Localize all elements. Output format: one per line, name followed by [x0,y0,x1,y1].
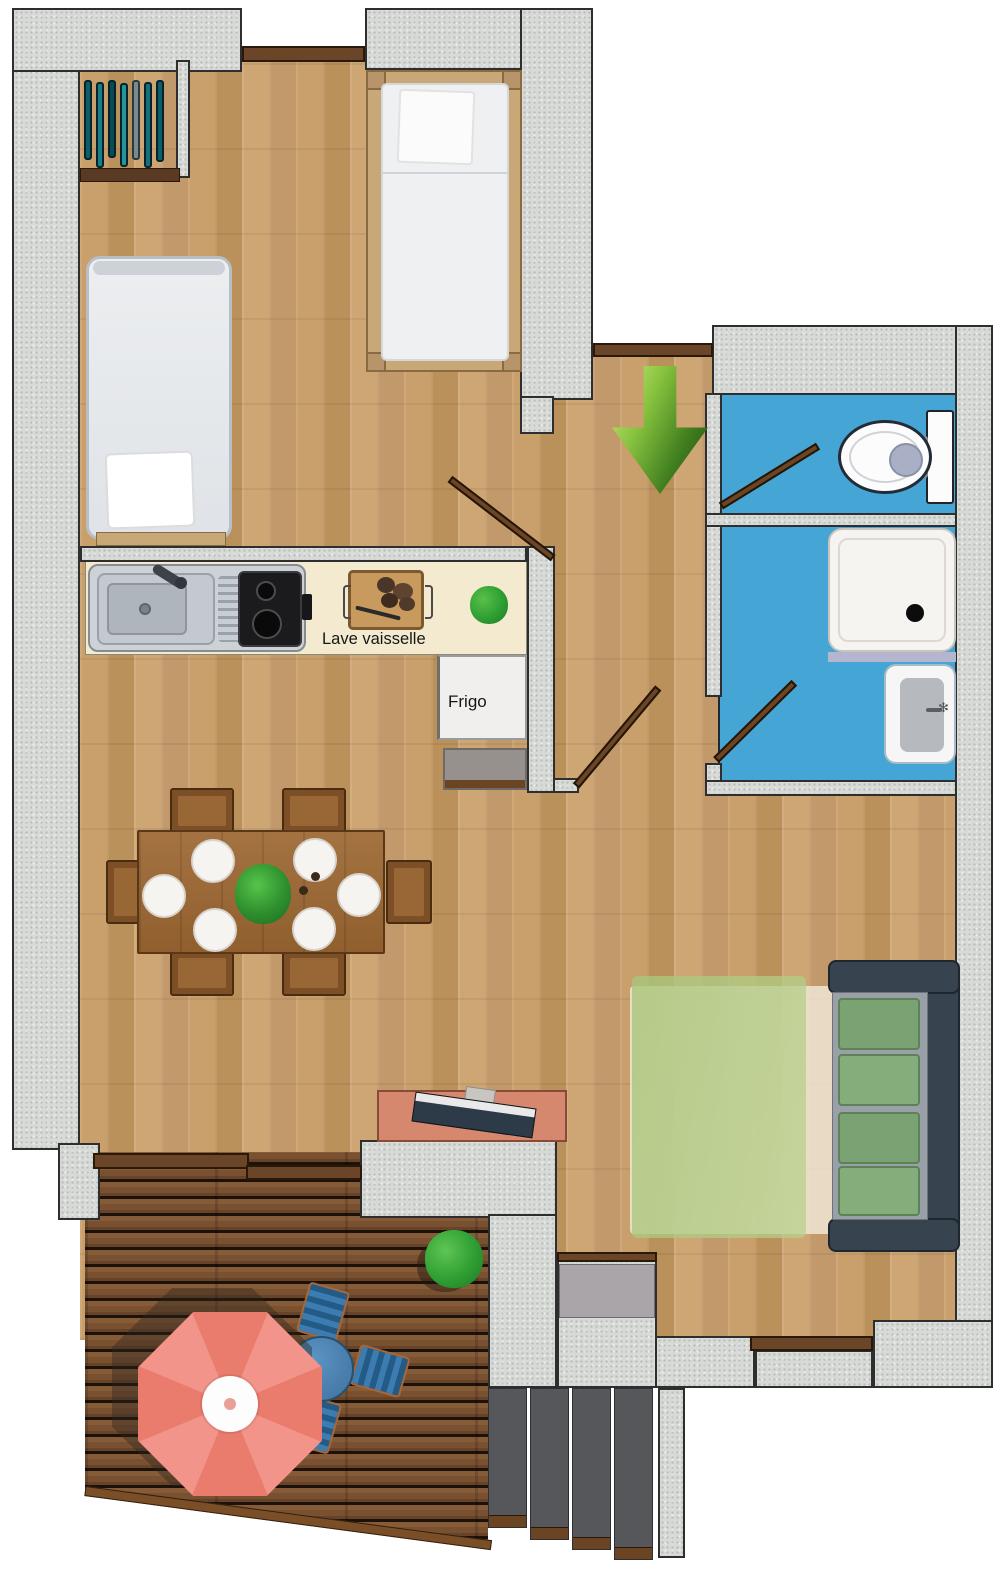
wall-kitchen-top [80,546,527,562]
sink-sparkle-icon: ✻ [938,700,949,716]
shower-curb [828,652,956,662]
window-bottom-sill [557,1252,657,1262]
dining-chair [386,860,432,924]
shower-drain [906,604,924,622]
sink-drain [139,603,151,615]
knife-icon [355,605,401,620]
sofa-cushion [838,1112,920,1164]
wall-bedroom-column [520,8,593,400]
bathroom-sink: ✻ [884,664,956,764]
wall-bottom-a [360,1140,557,1218]
kitchen-appliance [443,748,527,790]
terrace-step-2 [246,1165,362,1180]
wall-bottom-d [655,1336,755,1388]
fridge-label: Frigo [448,692,487,712]
outside-top-right [593,0,1000,343]
sofa-arm-bottom [828,1218,960,1252]
desk [377,1090,567,1142]
bed-top [366,70,522,372]
dining-chair [282,950,346,996]
wall-bottom-f [755,1350,873,1388]
dining-chair [170,950,234,996]
wall-right-outer [955,325,993,1387]
wall-wc-top [712,325,957,395]
wall-bath-bottom [705,780,957,796]
wardrobe [84,80,176,168]
bed-left-footboard [96,532,226,546]
sofa-cushion [838,998,920,1050]
terrace-bush [425,1230,483,1288]
kitchen-plant [470,586,508,624]
toilet-lid-center [889,443,923,477]
toilet-bowl [838,420,932,494]
cutting-board [348,570,424,630]
cooktop-knob [302,594,312,620]
entrance-threshold [593,343,713,357]
wall-bedroom-stub [520,396,554,434]
sink-basin [97,573,215,645]
wall-bottom-b [488,1214,557,1388]
toilet [838,408,958,508]
window-top [242,46,365,62]
dining-chair [170,788,234,834]
window-bottom [559,1264,655,1318]
dining-chair [282,788,346,834]
sliding-panels [488,1388,660,1560]
wall-left [12,8,80,1150]
shower-tray [828,528,956,652]
sofa [828,960,960,1252]
wall-bath-left [705,525,722,697]
sofa-cushion [838,1166,920,1216]
wall-wc-left [705,393,722,515]
dishwasher-label: Lave vaisselle [322,630,426,649]
bed-top-pillow [397,89,476,166]
wall-wardrobe-side [176,60,190,178]
sofa-cushion [838,1054,920,1106]
kitchen-sink-unit [88,564,306,652]
floor-plan: Lave vaisselle Frigo [0,0,1000,1570]
wardrobe-shelf [80,168,180,182]
wall-panel-right [658,1388,685,1558]
terrace-step-1 [93,1153,249,1169]
table-plant [235,864,291,924]
wall-bottom-e [873,1320,993,1388]
dining-table [137,830,385,954]
wall-kitchen-right [527,546,555,793]
bed-left-pillow [105,450,196,529]
threshold-bottom-right [750,1336,873,1351]
living-throw-green [632,976,806,1238]
cooktop [238,571,302,647]
wall-wc-bath-divider [705,513,957,527]
faucet-base [175,577,187,589]
wall-top-left [12,8,242,72]
sofa-arm-top [828,960,960,994]
